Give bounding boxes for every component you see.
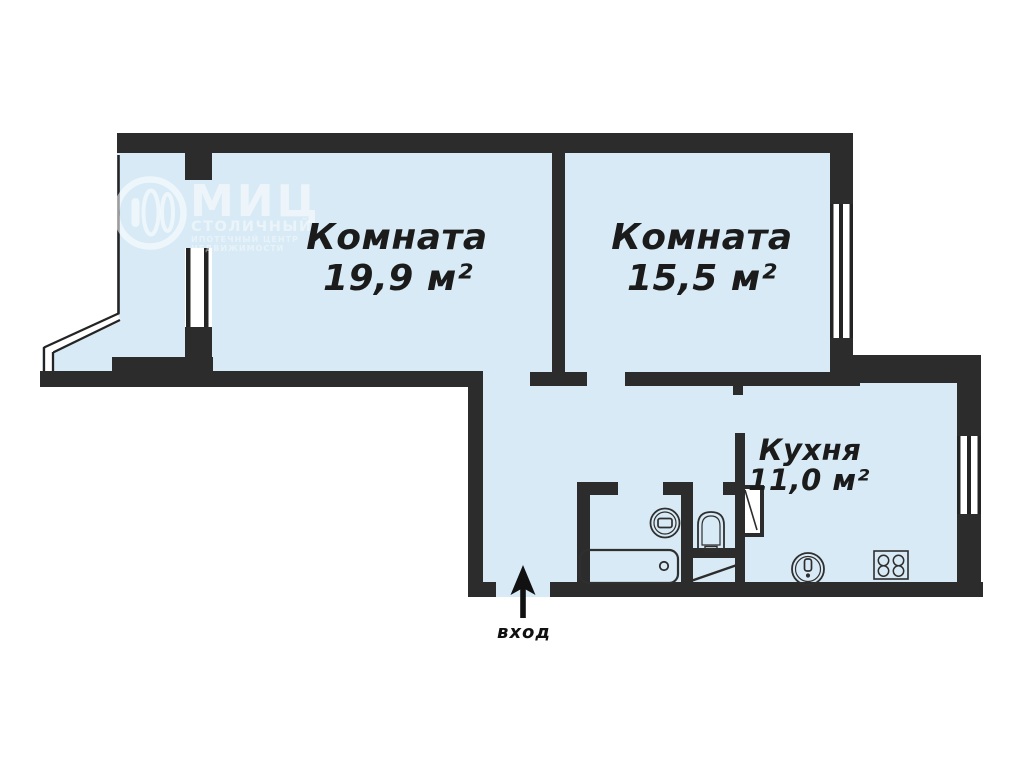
- wall-top: [117, 133, 853, 153]
- watermark-line3: ИПОТЕЧНЫЙ ЦЕНТР: [191, 233, 299, 244]
- wall-wc-top-left: [663, 482, 693, 495]
- wall-wc-left: [681, 495, 693, 583]
- window-room1: [185, 248, 212, 327]
- floor-plan-svg: МИЦ СТОЛИЧНЫЙ ИПОТЕЧНЫЙ ЦЕНТР НЕДВИЖИМОС…: [0, 0, 1024, 768]
- watermark-subtitle: СТОЛИЧНЫЙ: [191, 218, 313, 235]
- wall-segment: [530, 372, 587, 386]
- kitchen-area: 11,0 м²: [748, 463, 870, 497]
- wall-hall-top: [625, 372, 860, 386]
- wall-room-partition: [552, 153, 565, 373]
- window-kitchen: [957, 436, 981, 514]
- wall-kitchen-right-upper: [957, 355, 981, 436]
- entrance-label: вход: [497, 622, 551, 643]
- window-room2: [830, 204, 853, 338]
- wall-bath-top: [577, 482, 618, 495]
- wall-bottom-left: [40, 371, 483, 387]
- wall-right-room2-upper: [830, 133, 853, 204]
- room1-name: Комната: [306, 217, 487, 258]
- wall-segment: [483, 582, 496, 597]
- room2-name: Комната: [611, 217, 792, 258]
- room2-area: 15,5 м²: [627, 258, 777, 299]
- kitchen-name: Кухня: [759, 433, 861, 467]
- wall-segment: [733, 386, 743, 395]
- wall-bottom-main: [550, 582, 983, 597]
- wall-segment: [112, 357, 213, 372]
- watermark-line4: НЕДВИЖИМОСТИ: [191, 244, 284, 253]
- wall-hall-left: [468, 385, 483, 597]
- floor-plan-page: МИЦ СТОЛИЧНЫЙ ИПОТЕЧНЫЙ ЦЕНТР НЕДВИЖИМОС…: [0, 0, 1024, 768]
- room1-area: 19,9 м²: [323, 258, 473, 299]
